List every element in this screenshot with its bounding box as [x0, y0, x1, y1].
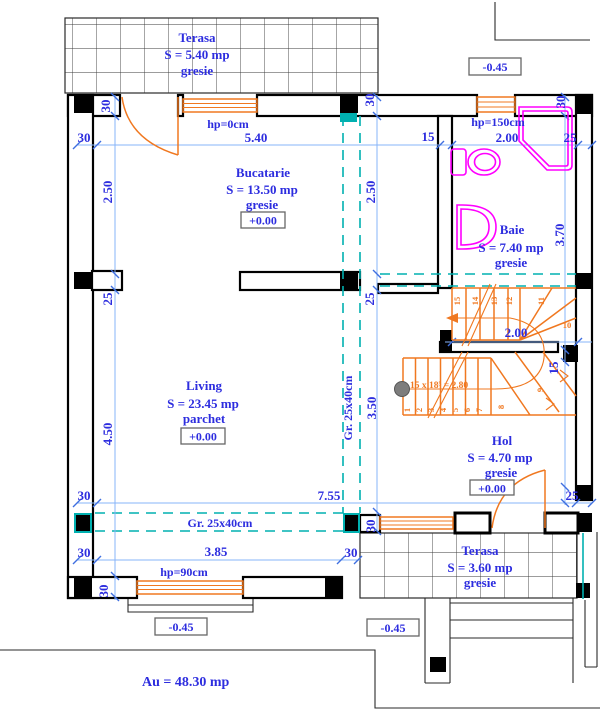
dim: 2.00 — [505, 325, 528, 340]
dim: 7.55 — [318, 488, 341, 503]
bath-window — [477, 97, 515, 112]
dim: 2.50 — [100, 181, 115, 204]
room-terasa-top-area: S = 5.40 mp — [164, 47, 229, 62]
dim: 4.50 — [100, 423, 115, 446]
step-5: 5 — [450, 408, 460, 412]
dim: 15 — [422, 129, 436, 144]
terrace-window — [380, 517, 453, 529]
walk-line-start-dot — [395, 382, 410, 397]
beam-horizontal-label: Gr. 25x40cm — [188, 516, 253, 530]
dim: 25 — [566, 488, 580, 503]
dim: 25 — [362, 292, 377, 306]
step-2: 2 — [414, 408, 424, 412]
dim: 30 — [78, 545, 91, 560]
dim: 3.50 — [364, 397, 379, 420]
step-13: 13 — [489, 297, 499, 306]
room-hol-area: S = 4.70 mp — [467, 450, 532, 465]
room-terasa-bottom-name: Terasa — [461, 543, 499, 558]
room-bucatarie-name: Bucatarie — [236, 165, 290, 180]
bath-window-label: hp=150cm — [471, 115, 525, 129]
floor-plan-drawing: Terasa S = 5.40 mp gresie Bucatarie S = … — [0, 0, 613, 720]
dim: 30 — [78, 130, 91, 145]
living-window — [137, 581, 243, 594]
room-terasa-bottom-area: S = 3.60 mp — [447, 560, 512, 575]
kitchen-window-label: hp=0cm — [207, 117, 249, 131]
dim: 30 — [553, 96, 568, 109]
entrance-door — [122, 97, 178, 155]
terrace-pier — [545, 513, 578, 533]
step-12: 12 — [504, 297, 514, 306]
room-terasa-top-name: Terasa — [178, 30, 216, 45]
step-15: 15 — [452, 297, 462, 306]
level-bottom-left: -0.45 — [169, 620, 194, 634]
level-bottom-right: -0.45 — [381, 621, 406, 635]
dim: 30 — [98, 100, 113, 113]
total-usable-area: Au = 48.30 mp — [142, 675, 230, 690]
room-baie-area: S = 7.40 mp — [478, 240, 543, 255]
room-baie-finish: gresie — [495, 255, 527, 270]
dim: 15 — [546, 361, 561, 375]
room-bucatarie-area: S = 13.50 mp — [226, 182, 298, 197]
dim: 30 — [362, 94, 377, 107]
dim: 30 — [345, 545, 358, 560]
room-living-name: Living — [186, 378, 223, 393]
concrete-beams — [95, 116, 583, 599]
dim: 25 — [564, 130, 578, 145]
step-7: 7 — [474, 407, 484, 412]
room-living-area: S = 23.45 mp — [167, 396, 239, 411]
dim: 30 — [78, 488, 91, 503]
room-terasa-bottom-finish: gresie — [464, 575, 496, 590]
step-11: 11 — [536, 297, 546, 305]
hol-level: +0.00 — [478, 482, 506, 496]
exterior-column — [430, 657, 446, 672]
level-top: -0.45 — [483, 60, 508, 74]
stair-formula: 15 x 18⁵ = 2.80 — [410, 381, 468, 391]
kitchen-window — [183, 99, 257, 112]
dim: 3.70 — [552, 224, 567, 247]
step-6: 6 — [462, 408, 472, 412]
dim: 25 — [100, 292, 115, 306]
living-window-label: hp=90cm — [160, 565, 208, 579]
step-8: 8 — [496, 405, 506, 409]
terrace-pier — [455, 513, 490, 533]
floor-plan-canvas: Terasa S = 5.40 mp gresie Bucatarie S = … — [0, 0, 613, 720]
room-baie-name: Baie — [500, 222, 525, 237]
dim: 2.00 — [496, 130, 519, 145]
dim: 30 — [363, 520, 378, 533]
step-9: 9 — [535, 388, 545, 392]
walls — [68, 95, 592, 598]
room-hol-finish: gresie — [485, 465, 517, 480]
dim: 3.85 — [205, 544, 228, 559]
dim: 2.50 — [363, 181, 378, 204]
living-level: +0.00 — [189, 430, 217, 444]
room-living-finish: parchet — [183, 411, 226, 426]
room-hol-name: Hol — [492, 433, 513, 448]
beam-vertical-label: Gr. 25x40cm — [341, 376, 355, 441]
step-3: 3 — [426, 408, 436, 412]
step-1: 1 — [402, 408, 412, 412]
dim: 30 — [96, 585, 111, 598]
room-bucatarie-finish: gresie — [246, 197, 278, 212]
dim: 5.40 — [245, 130, 268, 145]
toilet — [451, 149, 500, 175]
step-10: 10 — [563, 320, 572, 330]
step-14: 14 — [470, 296, 480, 305]
bucatarie-level: +0.00 — [249, 214, 277, 228]
room-terasa-top-finish: gresie — [181, 63, 213, 78]
